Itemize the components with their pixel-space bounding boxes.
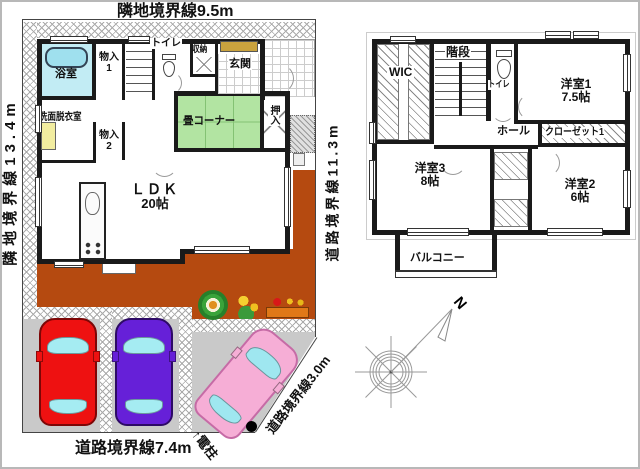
garden-planter (266, 296, 309, 318)
room-youshitsu1-size: 7.5帖 (534, 91, 618, 104)
north-arrow-head (438, 309, 452, 341)
room-storage1-label: 物入 1 (98, 52, 120, 74)
boundary-line-right (315, 19, 316, 337)
wall (174, 148, 285, 152)
room-ldk-size: 20帖 (120, 197, 190, 211)
room-entrance-label: 玄関 (228, 58, 252, 70)
room-youshitsu3-size: 8帖 (392, 175, 468, 188)
car-pink-rear-window (205, 392, 243, 428)
car-red-rear-window (49, 399, 88, 414)
planter-box (266, 307, 309, 318)
wall (514, 39, 518, 124)
window (50, 36, 88, 43)
window (623, 170, 631, 208)
window (35, 105, 42, 133)
window (407, 228, 469, 236)
car-pink-windshield (244, 342, 286, 381)
window (35, 177, 42, 227)
room-youshitsu2-size: 6帖 (542, 191, 618, 204)
window (573, 31, 599, 39)
wall (430, 39, 434, 144)
garden-shrub (198, 290, 228, 320)
toilet1f-door-arc (160, 72, 182, 94)
room-ldk-label: ＬＤＫ (120, 182, 190, 197)
room-toilet2f-label: トイレ (488, 80, 510, 90)
toilet1f-tank (162, 54, 176, 60)
kitchen-sink (85, 192, 100, 215)
room-shuno-label: 収納 (192, 45, 207, 55)
room-stairs-label: 階段 (445, 46, 471, 59)
room-toilet1f-label: トイレ (150, 38, 182, 49)
boundary-label-road-middle: 道路境界線11.3m (325, 123, 340, 262)
wall (42, 160, 96, 163)
compass-rose: N (347, 278, 487, 413)
wall (37, 96, 96, 100)
garden-flowers (234, 293, 261, 319)
car-red-windshield (47, 337, 88, 355)
boundary-label-top: 隣地境界線9.5m (117, 3, 233, 21)
window (54, 261, 84, 268)
window (369, 160, 376, 200)
parking-hatch-right (179, 307, 192, 432)
closet-cell-top (494, 152, 528, 180)
toilet2f-door-arc (492, 100, 514, 122)
stairs-2f-divider (459, 62, 462, 116)
room-bath-label: 浴室 (55, 68, 77, 80)
window (545, 31, 571, 39)
shuno-hatch (193, 57, 215, 72)
wall (190, 74, 218, 77)
room-youshitsu1: 洋室1 7.5帖 (534, 78, 618, 104)
floor-plan-canvas: 隣地境界線9.5m 隣地境界線13.4m (0, 0, 640, 469)
wall (122, 39, 125, 100)
wall (538, 143, 630, 147)
wall (122, 122, 125, 160)
approach-door-arc (265, 64, 294, 93)
room-wic-label: WIC (387, 66, 414, 79)
hall-label: ホール (497, 125, 530, 137)
closet1-label: クローゼット1 (545, 127, 604, 138)
window (128, 36, 150, 43)
youshitsu2-door-arc (534, 150, 560, 176)
balcony-wall-right (492, 235, 497, 273)
garden-hatch-strip (192, 319, 315, 332)
car-purple (115, 318, 173, 426)
youshitsu1-door-arc (518, 94, 544, 120)
stairs-1f (126, 44, 152, 99)
window (369, 122, 376, 144)
window (623, 54, 631, 92)
porch-step (102, 264, 136, 274)
room-storage2-label: 物入 2 (98, 130, 120, 152)
bathtub (45, 47, 88, 68)
car-purple-windshield (123, 337, 164, 355)
kitchen-counter (79, 182, 106, 260)
utility-pole-dot (246, 421, 257, 432)
window (390, 36, 416, 43)
utility-pole-label: ↑電柱 (189, 428, 220, 462)
washroom-sink (41, 122, 56, 150)
wic-closet-left (377, 44, 399, 140)
wic-closet-right (408, 44, 430, 140)
toilet2f-tank (496, 50, 512, 57)
window (547, 228, 603, 236)
terrace-step (290, 115, 315, 153)
youshitsu3-door-arc (440, 149, 466, 175)
boundary-line-top (22, 19, 315, 20)
boundary-label-road-bottom: 道路境界線7.4m (75, 440, 191, 458)
kitchen-stove (83, 241, 103, 256)
balcony-railing (395, 270, 497, 278)
closet-cell-bottom (494, 199, 528, 227)
window (284, 167, 291, 227)
wall (372, 140, 434, 144)
shoe-cabinet (220, 41, 258, 52)
ldk-door-arc (152, 152, 177, 177)
room-tatami-label: 畳コーナー (183, 115, 235, 127)
room-oshiire-label: 押入 (268, 104, 279, 126)
car-purple-rear-window (125, 399, 164, 414)
window (194, 246, 250, 254)
terrace-step-small (293, 153, 305, 166)
room-youshitsu2: 洋室2 6帖 (542, 178, 618, 204)
north-arrow-line (391, 309, 452, 372)
boundary-label-left: 隣地境界線13.4m (3, 98, 20, 266)
north-label: N (450, 294, 470, 313)
room-ldk: ＬＤＫ 20帖 (120, 182, 190, 212)
balcony-wall-left (395, 235, 400, 273)
balcony-label: バルコニー (410, 252, 465, 264)
wall (92, 39, 96, 100)
wall (528, 149, 532, 230)
car-red (39, 318, 97, 426)
wall (93, 122, 96, 160)
parking-stall-divider (100, 307, 112, 432)
